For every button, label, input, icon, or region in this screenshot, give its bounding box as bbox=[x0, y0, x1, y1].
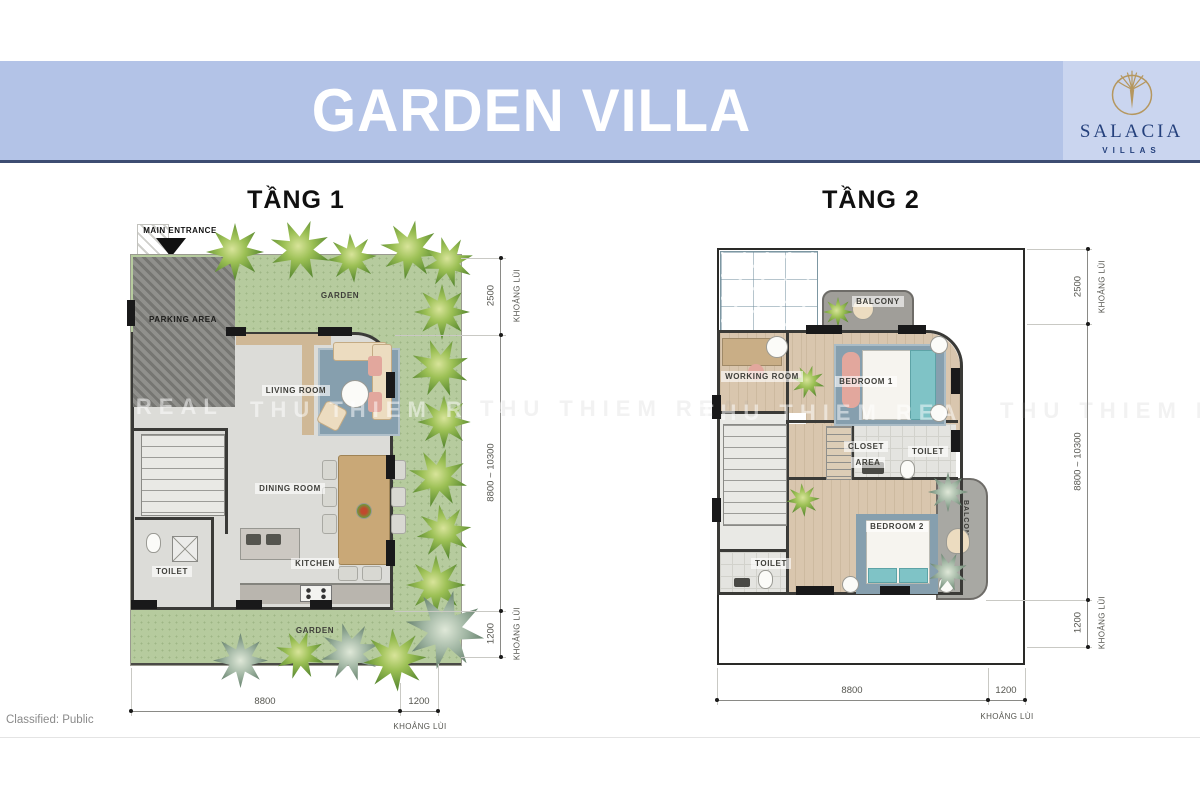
staircase bbox=[141, 434, 225, 516]
wall-segment bbox=[951, 368, 960, 394]
wall-segment bbox=[880, 586, 910, 595]
dimension-value: 1200 bbox=[389, 696, 449, 707]
floor2-title: TẦNG 2 bbox=[717, 186, 1025, 215]
brand-name: SALACIA bbox=[1080, 121, 1183, 143]
bedroom2-label: BEDROOM 2 bbox=[866, 521, 928, 532]
wall-segment bbox=[386, 540, 395, 566]
floor1-title: TẦNG 1 bbox=[131, 186, 461, 215]
wall-segment bbox=[135, 517, 214, 520]
room-label: DINING ROOM bbox=[240, 483, 340, 494]
staircase bbox=[723, 424, 787, 526]
dimension-tick bbox=[499, 333, 503, 337]
dimension-tick bbox=[1086, 645, 1090, 649]
toilet-label: TOILET bbox=[152, 566, 192, 577]
armchair bbox=[368, 356, 382, 376]
wall-segment bbox=[211, 518, 214, 608]
dimension-note: KHOẢNG LÙI bbox=[513, 261, 522, 331]
wall-segment bbox=[318, 327, 352, 336]
dimension-extension-line bbox=[1027, 324, 1092, 325]
parking-area bbox=[133, 257, 235, 407]
footer-divider bbox=[0, 737, 1200, 738]
dimension-note: KHOẢNG LÙI bbox=[1098, 588, 1107, 658]
dimension-tick bbox=[986, 698, 990, 702]
nightstand bbox=[842, 576, 859, 593]
sink bbox=[734, 578, 750, 587]
watermark-text: THU THIEM REAL bbox=[0, 394, 224, 420]
palm-tree-icon bbox=[1106, 67, 1158, 119]
room-label: TOILET bbox=[893, 446, 963, 457]
watermark-text: THU THIEM REAL bbox=[700, 400, 984, 426]
dimension-value: 8800 bbox=[787, 685, 917, 696]
room-label: PARKING AREA bbox=[133, 314, 233, 325]
dimension-tick bbox=[715, 698, 719, 702]
tree-icon bbox=[406, 555, 466, 615]
brand-subtitle: VILLAS bbox=[1102, 146, 1160, 155]
dimension-tick bbox=[499, 655, 503, 659]
room-label: KITCHEN bbox=[265, 558, 365, 569]
dimension-tick bbox=[1086, 598, 1090, 602]
room-label: BEDROOM 2 bbox=[847, 521, 947, 532]
dimension-tick bbox=[1086, 247, 1090, 251]
dimension-tick bbox=[1023, 698, 1027, 702]
plant-icon bbox=[928, 472, 968, 512]
room-label: AREA bbox=[828, 457, 908, 468]
bedroom1-label: BEDROOM 1 bbox=[835, 376, 897, 387]
dimension-value: 1200 bbox=[976, 685, 1036, 696]
dimension-line bbox=[131, 711, 438, 712]
wall-segment bbox=[226, 327, 246, 336]
dimension-value: 2500 bbox=[1073, 257, 1084, 317]
dimension-value: 1200 bbox=[486, 604, 497, 664]
page: GARDEN VILLA SALACIA VILLAS TẦNG 1 MAIN … bbox=[0, 0, 1200, 800]
dimension-tick bbox=[499, 609, 503, 613]
dimension-tick bbox=[436, 709, 440, 713]
wall-segment bbox=[131, 600, 157, 609]
toilet-bowl bbox=[146, 533, 161, 553]
dimension-value: 8800 ~ 10300 bbox=[1073, 422, 1084, 502]
dining-chair bbox=[391, 514, 406, 534]
room-label: LIVING ROOM bbox=[246, 385, 346, 396]
bed-blanket bbox=[868, 568, 897, 583]
wall-segment bbox=[898, 325, 926, 334]
classification-label: Classified: Public bbox=[6, 714, 94, 726]
closet-shelves bbox=[826, 426, 852, 480]
dining-chair bbox=[322, 514, 337, 534]
brand-logo: SALACIA VILLAS bbox=[1063, 61, 1200, 160]
room-label: GARDEN bbox=[275, 625, 355, 636]
wall-segment bbox=[386, 372, 395, 398]
main-entrance-label: MAIN ENTRANCE bbox=[120, 226, 240, 235]
wall-segment bbox=[806, 325, 842, 334]
dimension-extension-line bbox=[1027, 249, 1092, 250]
dimension-tick bbox=[398, 709, 402, 713]
wardrobe bbox=[236, 334, 331, 345]
living-room-label: LIVING ROOM bbox=[262, 385, 330, 396]
garden-label: GARDEN bbox=[292, 625, 338, 636]
dimension-note: KHOẢNG LÙI bbox=[370, 722, 470, 731]
room-label: TOILET bbox=[137, 566, 207, 577]
room-label: GARDEN bbox=[300, 290, 380, 301]
dimension-line bbox=[717, 700, 1025, 701]
wall-segment bbox=[386, 455, 395, 479]
watermark-text: THU THIEM REAL bbox=[1000, 398, 1200, 424]
wall-segment bbox=[225, 428, 228, 534]
closet-area-label: AREA bbox=[851, 457, 884, 468]
dimension-line bbox=[500, 258, 501, 658]
dimension-value: 2500 bbox=[486, 266, 497, 326]
dining-chair bbox=[362, 566, 382, 581]
wall-segment bbox=[717, 549, 788, 552]
toilet2-label: TOILET bbox=[751, 558, 791, 569]
room-label: BALCONY bbox=[838, 296, 918, 307]
wall-segment bbox=[236, 600, 262, 609]
garden-label: GARDEN bbox=[317, 290, 363, 301]
parking-label: PARKING AREA bbox=[145, 314, 221, 325]
shower-tray bbox=[172, 536, 198, 562]
dimension-tick bbox=[129, 709, 133, 713]
dimension-line bbox=[1087, 249, 1088, 647]
wall-segment bbox=[131, 428, 228, 431]
room-label: TOILET bbox=[736, 558, 806, 569]
dining-chair bbox=[391, 487, 406, 507]
wall-segment bbox=[796, 586, 834, 595]
working-room-label: WORKING ROOM bbox=[721, 371, 803, 382]
sink bbox=[266, 534, 281, 545]
kitchen-label: KITCHEN bbox=[291, 558, 339, 569]
dimension-note: KHOẢNG LÙI bbox=[513, 599, 522, 669]
page-title: GARDEN VILLA bbox=[0, 58, 1063, 163]
side-table bbox=[766, 336, 788, 358]
dimension-tick bbox=[1086, 322, 1090, 326]
dimension-value: 8800 bbox=[200, 696, 330, 707]
dimension-tick bbox=[499, 256, 503, 260]
dimension-note: KHOẢNG LÙI bbox=[1098, 252, 1107, 322]
dimension-value: 8800 ~ 10300 bbox=[486, 433, 497, 513]
toilet1-label: TOILET bbox=[908, 446, 948, 457]
balcony-label: BALCONY bbox=[852, 296, 904, 307]
palm-tree-icon bbox=[213, 633, 268, 688]
bed-blanket bbox=[899, 568, 928, 583]
closet-area-label: CLOSET bbox=[844, 441, 888, 452]
dining-chair bbox=[322, 460, 337, 480]
dimension-extension-line bbox=[395, 335, 506, 336]
dimension-note: KHOẢNG LÙI bbox=[957, 712, 1057, 721]
wall-segment bbox=[786, 477, 958, 480]
wall-segment bbox=[712, 498, 721, 522]
dimension-value: 1200 bbox=[1073, 593, 1084, 653]
wall-segment bbox=[310, 600, 332, 609]
nightstand bbox=[930, 336, 948, 354]
sink bbox=[246, 534, 261, 545]
fruit-bowl bbox=[356, 503, 372, 519]
dining-room-label: DINING ROOM bbox=[255, 483, 325, 494]
room-label: BEDROOM 1 bbox=[816, 376, 916, 387]
toilet-bowl bbox=[758, 570, 773, 589]
room-label: WORKING ROOM bbox=[712, 371, 812, 382]
skylight-glass-roof bbox=[720, 251, 818, 334]
